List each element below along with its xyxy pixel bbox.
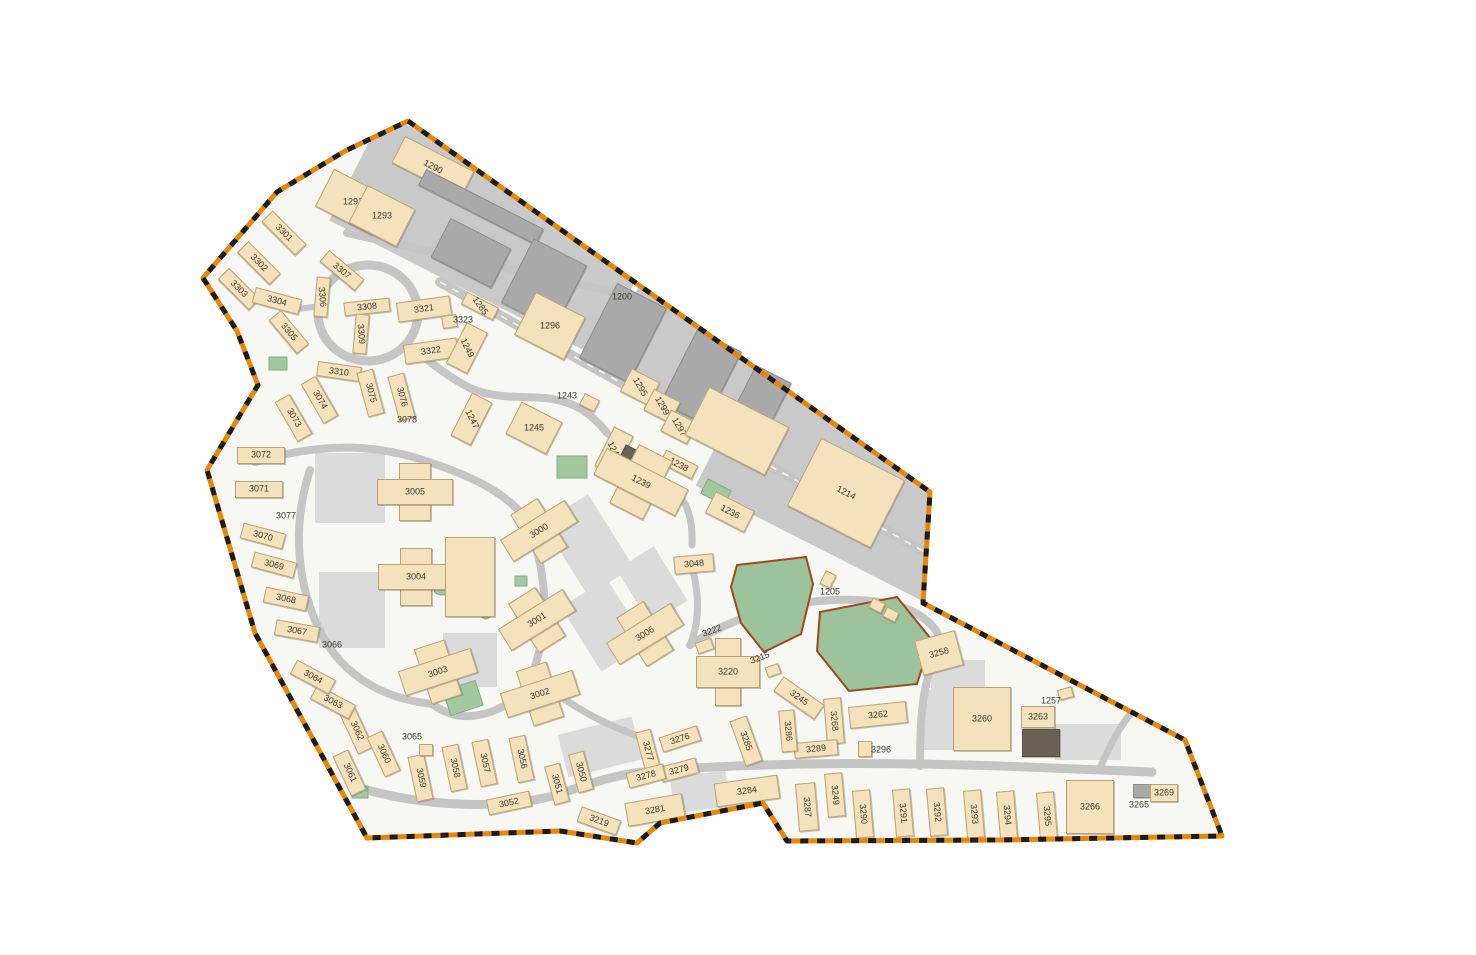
building-label-1214: 1214 — [835, 484, 857, 501]
building-label-3278: 3278 — [635, 769, 657, 783]
building-3268: 3268 — [823, 697, 845, 744]
building-3262: 3262 — [848, 701, 908, 729]
building-label-3292: 3292 — [932, 802, 943, 823]
building-3258: 3258 — [914, 630, 964, 676]
building-label-3078: 3078 — [397, 416, 417, 425]
building-3004: 3004 — [378, 548, 454, 606]
building-label-1295: 1295 — [631, 376, 649, 398]
building-3069: 3069 — [251, 552, 298, 579]
building-label-3071: 3071 — [249, 485, 269, 494]
building-3310: 3310 — [316, 361, 362, 382]
building-label-3277: 3277 — [641, 740, 655, 762]
building-3292: 3292 — [926, 787, 948, 836]
building-3064: 3064 — [290, 660, 336, 695]
building-3050: 3050 — [568, 751, 594, 794]
building-label-3303: 3303 — [229, 279, 250, 300]
building — [445, 537, 495, 617]
building-3003: 3003 — [393, 633, 483, 712]
building-label-3260: 3260 — [972, 715, 992, 724]
building — [578, 392, 599, 411]
building-3068: 3068 — [263, 587, 309, 612]
building-3278: 3278 — [626, 763, 667, 788]
building-3276: 3276 — [659, 725, 702, 753]
building-label-3287: 3287 — [802, 797, 813, 818]
building-label-3266: 3266 — [1080, 803, 1100, 812]
building-label-3075: 3075 — [363, 382, 377, 404]
building-label-3059: 3059 — [414, 767, 427, 788]
building-label-3281: 3281 — [644, 804, 665, 816]
building-label-3309: 3309 — [356, 324, 367, 345]
building-label-3268: 3268 — [829, 711, 840, 732]
building-label-3293: 3293 — [969, 804, 980, 825]
building-label-3072: 3072 — [251, 451, 271, 460]
building — [1022, 729, 1060, 757]
building-3284: 3284 — [714, 775, 781, 808]
building-label-3219: 3219 — [588, 813, 610, 828]
building-label-3220: 3220 — [718, 668, 738, 677]
building — [765, 662, 782, 677]
building-label-3066: 3066 — [322, 641, 342, 650]
building — [1133, 784, 1151, 798]
building-label-3262: 3262 — [868, 709, 889, 720]
building-3293: 3293 — [963, 789, 985, 838]
building-3052: 3052 — [486, 791, 532, 816]
building-label-3052: 3052 — [498, 797, 519, 810]
building-label-1243: 1243 — [557, 392, 577, 401]
building-label-3290: 3290 — [858, 804, 869, 825]
building-3074: 3074 — [300, 376, 338, 424]
building-label-3048: 3048 — [684, 559, 705, 570]
building-label-3056: 3056 — [515, 748, 528, 769]
building-label-3294: 3294 — [1002, 805, 1013, 826]
building-1236: 1236 — [705, 491, 755, 532]
building-label-3265: 3265 — [1129, 801, 1149, 810]
building-3301: 3301 — [261, 210, 306, 255]
building-label-1236: 1236 — [719, 503, 741, 520]
building-3071: 3071 — [235, 481, 283, 498]
building-label-3295: 3295 — [1042, 806, 1053, 827]
building-3302: 3302 — [237, 241, 281, 285]
building-label-3305: 3305 — [279, 321, 299, 342]
building-label-3061: 3061 — [341, 762, 358, 784]
building-3072: 3072 — [237, 447, 285, 464]
building-3056: 3056 — [508, 735, 534, 784]
building-label-3308: 3308 — [357, 301, 378, 312]
building-label-3279: 3279 — [668, 763, 690, 777]
building-label-3067: 3067 — [286, 625, 307, 637]
building-label-1257: 1257 — [1041, 697, 1061, 706]
building-label-3005: 3005 — [405, 488, 425, 497]
building-3294: 3294 — [996, 790, 1018, 839]
building-3309: 3309 — [352, 313, 369, 354]
building-label-3263: 3263 — [1028, 713, 1048, 722]
building-3286: 3286 — [778, 709, 798, 752]
building-label-3310: 3310 — [328, 365, 349, 377]
building-label-1293: 1293 — [372, 212, 392, 221]
building-label-3245: 3245 — [788, 689, 810, 708]
building-3260: 3260 — [953, 687, 1011, 751]
building-1249: 1249 — [446, 322, 488, 374]
building-3060: 3060 — [366, 730, 400, 777]
building-label-3306: 3306 — [317, 287, 328, 308]
building-label-3289: 3289 — [806, 744, 827, 755]
building-3067: 3067 — [274, 619, 320, 642]
building-label-3073: 3073 — [284, 407, 302, 429]
building-3070: 3070 — [240, 523, 287, 550]
building-3303: 3303 — [218, 268, 260, 310]
building-3059: 3059 — [407, 754, 433, 803]
building-label-3258: 3258 — [928, 646, 950, 660]
building-3289: 3289 — [793, 739, 838, 759]
building-3249: 3249 — [824, 772, 846, 817]
building-3291: 3291 — [892, 788, 914, 837]
building-3051: 3051 — [544, 763, 570, 806]
building-label-3307: 3307 — [331, 260, 352, 280]
building-label-3058: 3058 — [448, 757, 461, 778]
building-label-3060: 3060 — [375, 743, 392, 765]
building-label-3301: 3301 — [274, 223, 295, 244]
building-label-3304: 3304 — [266, 294, 288, 308]
building-3219: 3219 — [577, 806, 622, 835]
building-3000: 3000 — [491, 486, 586, 575]
building-label-1249: 1249 — [459, 337, 476, 359]
buildings-layer: 1290129112933301330233033304330533073306… — [0, 0, 1476, 955]
building — [882, 606, 899, 622]
building — [868, 597, 885, 613]
building-3295: 3295 — [1036, 791, 1058, 840]
building-1239: 1239 — [585, 432, 697, 533]
building-3305: 3305 — [269, 310, 310, 354]
building-label-3004: 3004 — [406, 573, 426, 582]
building-3006: 3006 — [597, 589, 692, 678]
building-label-3321: 3321 — [413, 303, 434, 315]
building-3304: 3304 — [252, 287, 303, 315]
building-label-3069: 3069 — [263, 558, 285, 572]
building-3266: 3266 — [1066, 780, 1114, 834]
building-label-3323: 3323 — [453, 316, 473, 325]
building-3001: 3001 — [489, 575, 584, 664]
building-3290: 3290 — [852, 789, 874, 838]
building-label-3322: 3322 — [420, 345, 441, 357]
building-label-3286: 3286 — [783, 721, 794, 742]
building-3073: 3073 — [274, 394, 312, 442]
building-label-1245: 1245 — [524, 424, 544, 433]
building — [419, 744, 433, 756]
building-label-3057: 3057 — [478, 752, 491, 773]
building-3002: 3002 — [495, 655, 585, 734]
building-label-3050: 3050 — [574, 761, 588, 783]
building-label-3302: 3302 — [249, 253, 270, 274]
building-label-3062: 3062 — [348, 720, 365, 742]
building-label-1205: 1205 — [820, 588, 840, 597]
building-3269: 3269 — [1150, 784, 1178, 802]
building-3057: 3057 — [471, 739, 497, 788]
building-3263: 3263 — [1021, 706, 1055, 728]
building-label-3077: 3077 — [276, 512, 296, 521]
building-3048: 3048 — [673, 553, 714, 574]
building-1214: 1214 — [787, 438, 905, 548]
building-label-3284: 3284 — [736, 785, 757, 797]
building-1245: 1245 — [505, 402, 562, 455]
building-label-3249: 3249 — [830, 785, 841, 806]
building-label-3051: 3051 — [550, 773, 564, 795]
building-3287: 3287 — [795, 782, 819, 832]
building-3063: 3063 — [310, 685, 356, 720]
building-label-3291: 3291 — [898, 803, 909, 824]
building-label-1247: 1247 — [463, 408, 480, 430]
building — [431, 218, 512, 288]
building-3058: 3058 — [441, 744, 467, 793]
building-label-3222: 3222 — [701, 623, 723, 638]
building-label-3285: 3285 — [738, 730, 753, 752]
building-label-3276: 3276 — [669, 732, 691, 747]
building-label-3074: 3074 — [310, 389, 328, 411]
building-3061: 3061 — [332, 749, 366, 796]
building-3220: 3220 — [696, 638, 760, 706]
building-3075: 3075 — [356, 369, 384, 418]
building-3281: 3281 — [624, 793, 685, 827]
building-label-1285: 1285 — [471, 295, 490, 317]
building-label-3269: 3269 — [1154, 789, 1174, 798]
building-label-3068: 3068 — [275, 593, 296, 606]
building-label-3064: 3064 — [302, 668, 324, 685]
building — [858, 741, 872, 757]
building-3005: 3005 — [377, 463, 453, 521]
building-3285: 3285 — [729, 715, 762, 766]
building-label-1200: 1200 — [612, 293, 632, 302]
building-1247: 1247 — [450, 392, 492, 445]
building-label-3070: 3070 — [252, 529, 274, 543]
building-3306: 3306 — [313, 276, 330, 317]
building-label-3065: 3065 — [402, 733, 422, 742]
building-label-3076: 3076 — [394, 386, 408, 408]
base-site-map: 1290129112933301330233033304330533073306… — [0, 0, 1476, 955]
building-label-3296: 3296 — [871, 746, 891, 755]
building-label-3063: 3063 — [322, 693, 344, 710]
building-label-1296: 1296 — [540, 322, 560, 331]
